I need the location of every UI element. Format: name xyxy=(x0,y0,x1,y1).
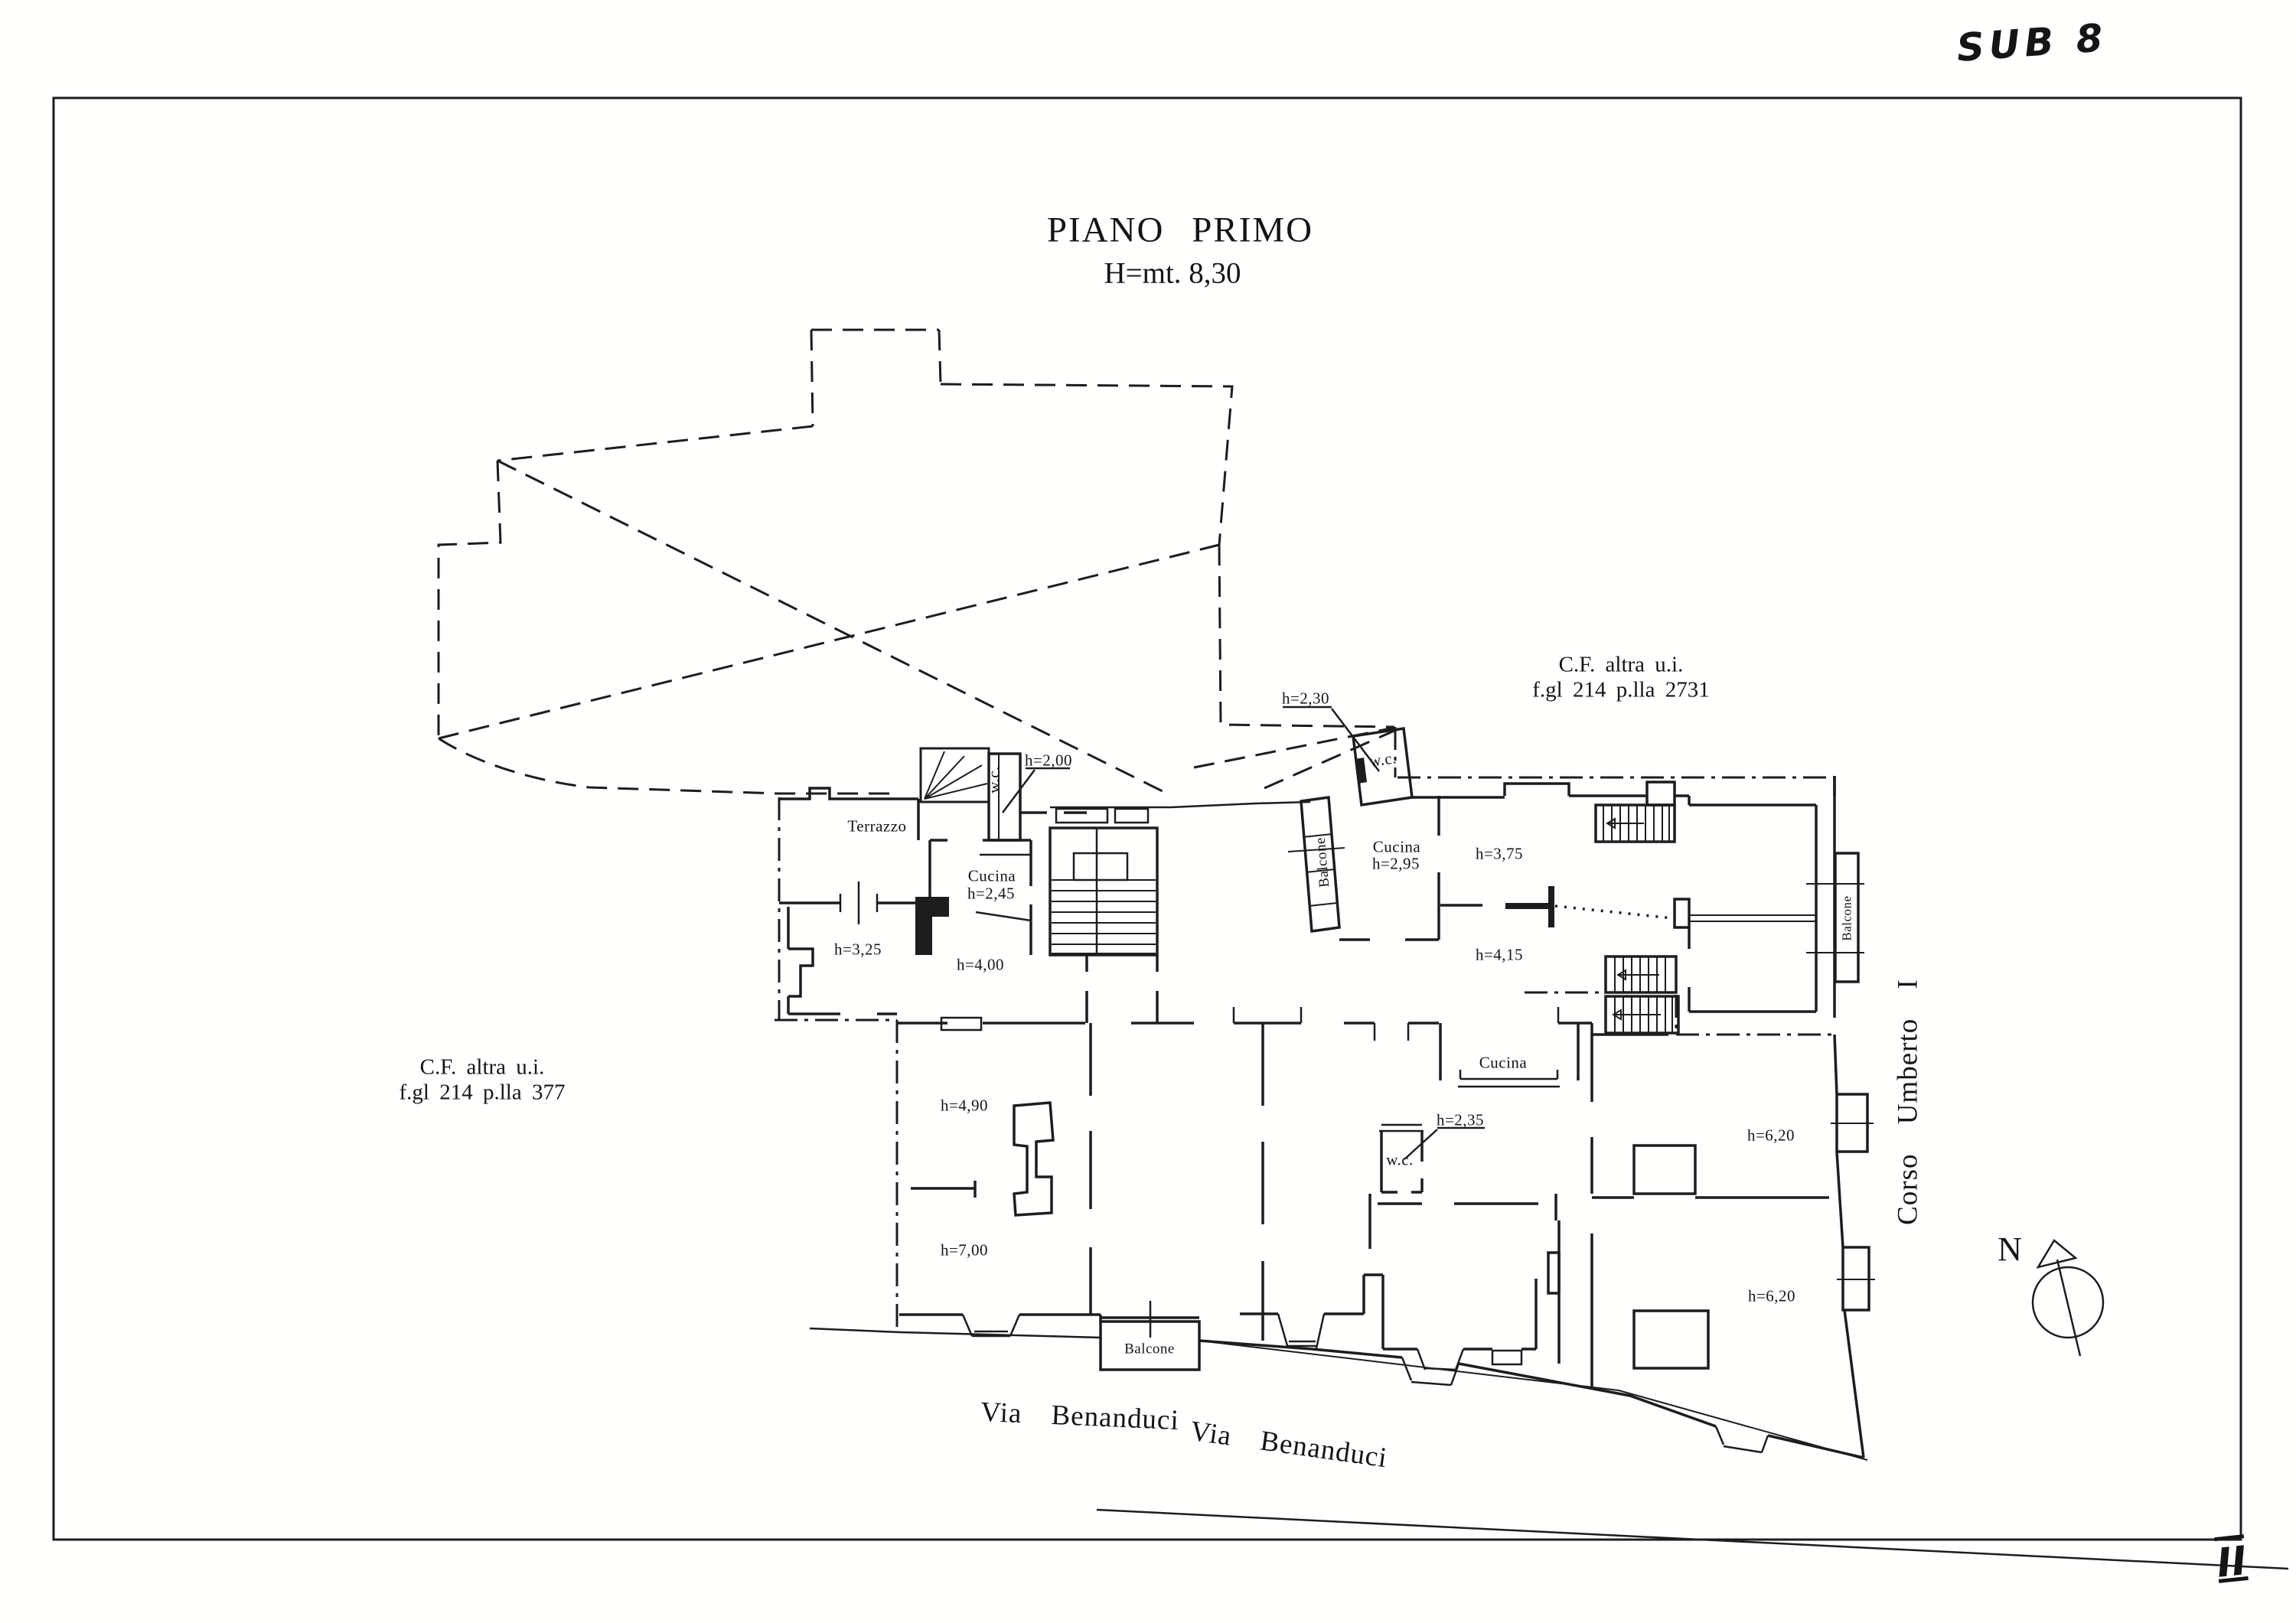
height-label-h295: h=2,95 xyxy=(1372,856,1420,872)
height-label-h700: h=7,00 xyxy=(941,1243,988,1259)
street-label-corso-umberto: Corso Umberto I xyxy=(1894,979,1923,1225)
height-label-h245: h=2,45 xyxy=(967,886,1015,902)
height-label-h415: h=4,15 xyxy=(1476,947,1523,963)
height-label-h620-lower: h=6,20 xyxy=(1748,1289,1795,1305)
building-walls xyxy=(779,707,1875,1458)
height-label-h490: h=4,90 xyxy=(941,1098,988,1114)
cadastral-left-line2: f.gl 214 p.lla 377 xyxy=(400,1080,566,1106)
cadastral-note-right: C.F. altra u.i. f.gl 214 p.lla 2731 xyxy=(1532,653,1709,704)
cadastral-left-line1: C.F. altra u.i. xyxy=(400,1055,566,1080)
height-label-h200: h=2,00 xyxy=(1025,753,1072,769)
room-label-cucina-mid: Cucina xyxy=(1479,1055,1527,1071)
room-label-cucina-right: Cucina xyxy=(1373,839,1420,855)
height-label-h620-upper: h=6,20 xyxy=(1747,1128,1795,1144)
room-label-wc-topright: w.c. xyxy=(1368,750,1397,770)
room-label-wc-mid: w.c. xyxy=(1386,1152,1414,1168)
height-label-h400: h=4,00 xyxy=(957,957,1004,973)
roof-outline-dashed xyxy=(439,330,1396,794)
cadastral-right-line1: C.F. altra u.i. xyxy=(1532,653,1709,678)
compass-icon xyxy=(2033,1240,2103,1356)
room-label-wc-left: w.c. xyxy=(987,766,1003,794)
height-label-h230: h=2,30 xyxy=(1282,691,1329,707)
scanned-floor-plan-page: PIANO PRIMO H=mt. 8,30 SUB 8 II C.F. alt… xyxy=(0,0,2296,1623)
north-label: N xyxy=(1998,1233,2022,1266)
dotted-tie-line xyxy=(1555,906,1673,918)
drawing-height-note: H=mt. 8,30 xyxy=(1104,259,1241,288)
room-label-terrazzo: Terrazzo xyxy=(847,819,906,835)
height-label-h375: h=3,75 xyxy=(1476,846,1523,862)
room-label-balcone-box: Balcone xyxy=(1124,1342,1175,1357)
street-lines xyxy=(810,1328,2288,1569)
height-label-h325: h=3,25 xyxy=(834,942,882,958)
drawing-title: PIANO PRIMO xyxy=(1047,213,1313,249)
sub-annotation: SUB 8 xyxy=(1955,18,2108,67)
cadastral-right-line2: f.gl 214 p.lla 2731 xyxy=(1532,678,1709,703)
room-label-balcone-right: Balcone xyxy=(1841,895,1854,940)
room-label-cucina-left: Cucina xyxy=(968,869,1016,885)
cadastral-note-left: C.F. altra u.i. f.gl 214 p.lla 377 xyxy=(400,1055,566,1106)
sheet-numeral: II xyxy=(2215,1541,2249,1584)
height-label-h235: h=2,35 xyxy=(1437,1113,1484,1129)
